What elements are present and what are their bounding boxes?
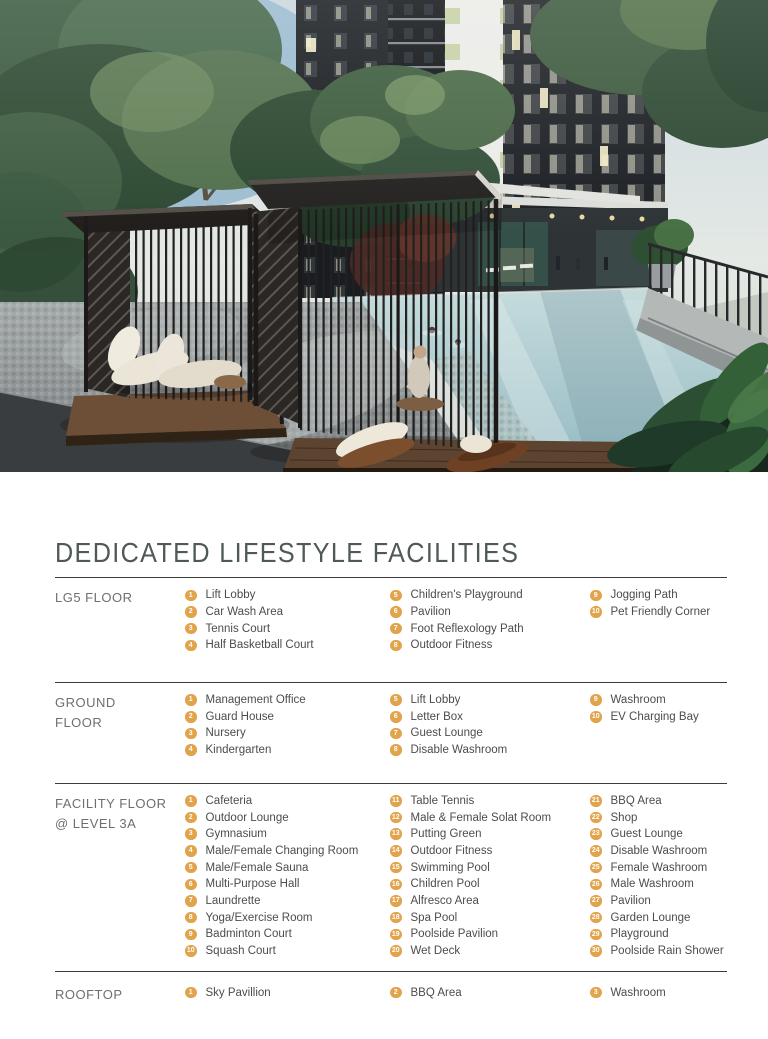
item-number-badge: 13 [390,828,402,840]
item-number-badge: 28 [590,912,602,924]
item-number-badge: 25 [590,862,602,874]
facility-column-1: 1Sky Pavillion [185,984,390,1005]
facility-item: 28Garden Lounge [590,909,727,926]
section-facility-floor-level-3a: FACILITY FLOOR @ LEVEL 3A 1Cafeteria2Out… [55,783,727,972]
item-number-badge: 22 [590,812,602,824]
item-number-badge: 4 [185,744,197,756]
facility-column-2: 5Lift Lobby6Letter Box7Guest Lounge8Disa… [390,692,590,759]
facility-column-1: 1Management Office2Guard House3Nursery4K… [185,692,390,759]
item-number-badge: 21 [590,795,602,807]
item-number-badge: 3 [590,987,602,999]
facility-item: 29Playground [590,926,727,943]
item-number-badge: 6 [390,711,402,723]
item-number-badge: 1 [185,590,197,602]
item-label: Kindergarten [206,744,272,756]
facility-item: 8Outdoor Fitness [390,637,590,654]
item-label: Laundrette [206,895,261,907]
item-label: Half Basketball Court [206,639,314,651]
facility-item: 1Lift Lobby [185,587,390,604]
facility-item: 15Swimming Pool [390,859,590,876]
item-number-badge: 2 [185,606,197,618]
facility-item: 2Car Wash Area [185,604,390,621]
section-rooftop: ROOFTOP 1Sky Pavillion 2BBQ Area 3Washro… [55,971,727,1015]
facility-column-3: 3Washroom [590,984,727,1005]
item-number-badge: 5 [390,694,402,706]
item-label: Yoga/Exercise Room [206,912,313,924]
facility-item: 20Wet Deck [390,943,590,960]
item-number-badge: 2 [185,812,197,824]
item-number-badge: 27 [590,895,602,907]
item-label: Nursery [206,727,246,739]
item-number-badge: 15 [390,862,402,874]
item-label: Washroom [611,694,666,706]
item-number-badge: 1 [185,795,197,807]
item-number-badge: 9 [185,929,197,941]
item-label: EV Charging Bay [611,711,699,723]
facility-item: 3Washroom [590,984,727,1001]
item-label: Playground [611,928,669,940]
facilities-content: DEDICATED LIFESTYLE FACILITIES LG5 FLOOR… [55,537,727,1016]
item-label: Guard House [206,711,274,723]
item-number-badge: 3 [185,828,197,840]
facility-column-1: 1Cafeteria2Outdoor Lounge3Gymnasium4Male… [185,793,390,960]
facility-item: 13Putting Green [390,826,590,843]
facility-item: 16Children Pool [390,876,590,893]
facility-column-2: 11Table Tennis12Male & Female Solat Room… [390,793,590,960]
item-label: Guest Lounge [611,828,683,840]
item-number-badge: 10 [590,606,602,618]
facility-item: 7Laundrette [185,893,390,910]
facility-item: 12Male & Female Solat Room [390,809,590,826]
facility-item: 18Spa Pool [390,909,590,926]
facility-item: 21BBQ Area [590,793,727,810]
facility-item: 6Letter Box [390,708,590,725]
item-number-badge: 7 [185,895,197,907]
item-label: Washroom [611,987,666,999]
item-label: Pavilion [411,606,451,618]
facility-item: 6Pavilion [390,604,590,621]
item-label: Pavilion [611,895,651,907]
facility-item: 3Nursery [185,725,390,742]
floor-label-ground: GROUND FLOOR [55,692,185,759]
section-lg5-floor: LG5 FLOOR 1Lift Lobby2Car Wash Area3Tenn… [55,577,727,682]
item-number-badge: 10 [185,945,197,957]
item-label: Cafeteria [206,795,253,807]
facility-item: 4Male/Female Changing Room [185,843,390,860]
item-label: Spa Pool [411,912,458,924]
facility-item: 4Half Basketball Court [185,637,390,654]
item-number-badge: 1 [185,987,197,999]
item-label: Multi-Purpose Hall [206,878,300,890]
item-number-badge: 12 [390,812,402,824]
item-label: Lift Lobby [411,694,461,706]
item-number-badge: 18 [390,912,402,924]
facility-item: 3Tennis Court [185,620,390,637]
facility-item: 24Disable Washroom [590,843,727,860]
facility-item: 11Table Tennis [390,793,590,810]
item-number-badge: 24 [590,845,602,857]
item-number-badge: 16 [390,879,402,891]
facility-item: 27Pavilion [590,893,727,910]
item-label: Male/Female Changing Room [206,845,359,857]
item-number-badge: 9 [590,590,602,602]
facility-item: 1Management Office [185,692,390,709]
item-number-badge: 6 [390,606,402,618]
item-number-badge: 7 [390,728,402,740]
item-number-badge: 7 [390,623,402,635]
facility-item: 2Guard House [185,708,390,725]
item-label: Outdoor Lounge [206,812,289,824]
facility-item: 10Pet Friendly Corner [590,604,727,621]
item-label: Putting Green [411,828,482,840]
facility-column-2: 2BBQ Area [390,984,590,1005]
item-number-badge: 29 [590,929,602,941]
item-label: Alfresco Area [411,895,479,907]
item-label: Male Washroom [611,878,694,890]
facility-item: 10Squash Court [185,943,390,960]
facility-column-3: 9Washroom10EV Charging Bay [590,692,727,759]
item-label: Male/Female Sauna [206,862,309,874]
item-number-badge: 19 [390,929,402,941]
item-number-badge: 5 [390,590,402,602]
item-number-badge: 30 [590,945,602,957]
item-label: Squash Court [206,945,276,957]
item-number-badge: 6 [185,879,197,891]
facility-item: 1Sky Pavillion [185,984,390,1001]
facility-item: 7Guest Lounge [390,725,590,742]
facility-item: 3Gymnasium [185,826,390,843]
facility-item: 25Female Washroom [590,859,727,876]
item-label: BBQ Area [411,987,462,999]
facility-item: 8Disable Washroom [390,742,590,759]
facility-item: 9Washroom [590,692,727,709]
item-label: Car Wash Area [206,606,284,618]
item-label: Sky Pavillion [206,987,271,999]
facility-column-3: 9Jogging Path10Pet Friendly Corner [590,587,727,654]
item-label: Jogging Path [611,589,678,601]
facility-item: 6Multi-Purpose Hall [185,876,390,893]
facility-column-3: 21BBQ Area22Shop23Guest Lounge24Disable … [590,793,727,960]
item-label: Badminton Court [206,928,292,940]
facility-item: 9Jogging Path [590,587,727,604]
item-label: Tennis Court [206,623,271,635]
floor-label-lg5: LG5 FLOOR [55,587,185,654]
facility-item: 5Male/Female Sauna [185,859,390,876]
facility-item: 7Foot Reflexology Path [390,620,590,637]
item-label: Disable Washroom [411,744,508,756]
item-number-badge: 10 [590,711,602,723]
item-number-badge: 17 [390,895,402,907]
item-label: Female Washroom [611,862,708,874]
floor-label-level3a: FACILITY FLOOR @ LEVEL 3A [55,793,185,960]
item-label: Table Tennis [411,795,475,807]
facility-item: 1Cafeteria [185,793,390,810]
item-number-badge: 4 [185,640,197,652]
item-number-badge: 14 [390,845,402,857]
facility-item: 5Lift Lobby [390,692,590,709]
item-label: Wet Deck [411,945,461,957]
item-number-badge: 3 [185,623,197,635]
facility-item: 9Badminton Court [185,926,390,943]
item-number-badge: 1 [185,694,197,706]
item-label: Lift Lobby [206,589,256,601]
facility-column-1: 1Lift Lobby2Car Wash Area3Tennis Court4H… [185,587,390,654]
item-number-badge: 8 [185,912,197,924]
item-label: Poolside Rain Shower [611,945,724,957]
item-label: Management Office [206,694,306,706]
facility-item: 8Yoga/Exercise Room [185,909,390,926]
facility-item: 22Shop [590,809,727,826]
facility-item: 4Kindergarten [185,742,390,759]
item-number-badge: 23 [590,828,602,840]
item-number-badge: 3 [185,728,197,740]
facility-item: 2Outdoor Lounge [185,809,390,826]
item-label: Disable Washroom [611,845,708,857]
item-label: Letter Box [411,711,463,723]
item-label: Garden Lounge [611,912,691,924]
floor-label-rooftop: ROOFTOP [55,984,185,1005]
item-number-badge: 2 [390,987,402,999]
facility-item: 26Male Washroom [590,876,727,893]
item-label: Shop [611,812,638,824]
item-number-badge: 26 [590,879,602,891]
item-label: Children Pool [411,878,480,890]
item-number-badge: 5 [185,862,197,874]
item-number-badge: 8 [390,744,402,756]
facility-item: 5Children's Playground [390,587,590,604]
item-number-badge: 2 [185,711,197,723]
item-number-badge: 9 [590,694,602,706]
item-label: Outdoor Fitness [411,845,493,857]
facility-item: 19Poolside Pavilion [390,926,590,943]
item-label: Outdoor Fitness [411,639,493,651]
facility-item: 17Alfresco Area [390,893,590,910]
item-label: Swimming Pool [411,862,490,874]
item-label: Gymnasium [206,828,267,840]
facility-column-2: 5Children's Playground6Pavilion7Foot Ref… [390,587,590,654]
item-number-badge: 4 [185,845,197,857]
item-label: Pet Friendly Corner [611,606,711,618]
facility-item: 10EV Charging Bay [590,708,727,725]
item-label: Guest Lounge [411,727,483,739]
item-label: BBQ Area [611,795,662,807]
facility-item: 14Outdoor Fitness [390,843,590,860]
hero-pool-render [0,0,768,472]
page-title: DEDICATED LIFESTYLE FACILITIES [55,537,660,569]
item-label: Male & Female Solat Room [411,812,552,824]
facility-item: 23Guest Lounge [590,826,727,843]
item-label: Children's Playground [411,589,523,601]
facility-item: 30Poolside Rain Shower [590,943,727,960]
item-label: Poolside Pavilion [411,928,499,940]
section-ground-floor: GROUND FLOOR 1Management Office2Guard Ho… [55,682,727,783]
item-label: Foot Reflexology Path [411,623,524,635]
item-number-badge: 20 [390,945,402,957]
facility-item: 2BBQ Area [390,984,590,1001]
item-number-badge: 8 [390,640,402,652]
item-number-badge: 11 [390,795,402,807]
